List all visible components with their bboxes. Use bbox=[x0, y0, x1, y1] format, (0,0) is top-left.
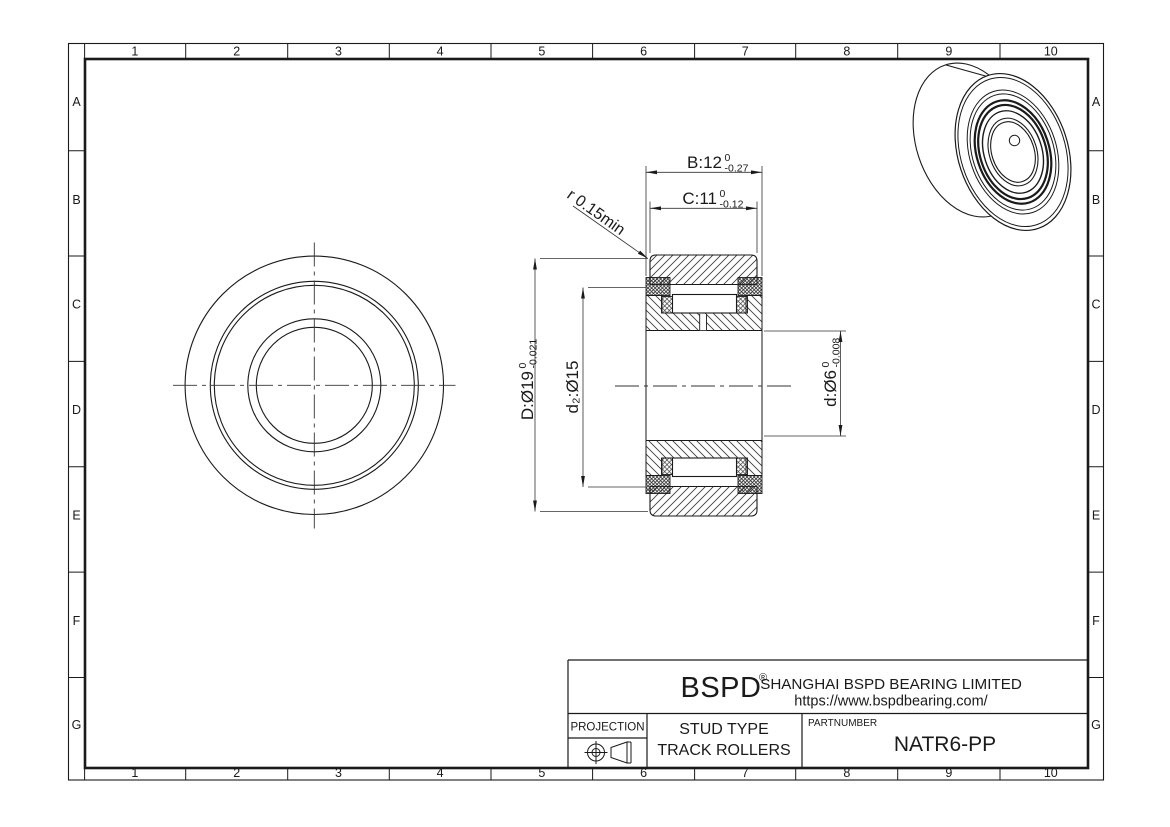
zone-label: A bbox=[72, 95, 81, 109]
dim-c-value: C:11 bbox=[682, 189, 717, 208]
zone-labels-left: A B C D E F G bbox=[72, 95, 82, 732]
isometric-view bbox=[894, 48, 1090, 245]
zone-label: E bbox=[72, 509, 80, 523]
zone-labels-right: A B C D E F G bbox=[1091, 95, 1101, 732]
zone-label: G bbox=[72, 718, 82, 732]
zone-label: 6 bbox=[640, 45, 647, 59]
dim-bore-diameter: d:Ø6 0 -0.008 bbox=[820, 338, 843, 407]
cage-bottom-right bbox=[737, 458, 748, 475]
zone-label: D bbox=[1091, 403, 1100, 417]
zone-label: F bbox=[73, 614, 81, 628]
company-website: https://www.bspdbearing.com/ bbox=[794, 694, 988, 710]
zone-label: 2 bbox=[233, 766, 240, 780]
bore-face-lines bbox=[646, 331, 762, 441]
section-view bbox=[615, 255, 793, 516]
seal-top-left bbox=[646, 278, 670, 296]
zone-label: 3 bbox=[335, 45, 342, 59]
dim-flange-diameter: d₂:Ø15 bbox=[563, 361, 582, 414]
zone-label: B bbox=[72, 193, 80, 207]
zone-label: F bbox=[1092, 614, 1100, 628]
iso-lube-hole bbox=[1009, 135, 1019, 145]
front-view bbox=[173, 243, 456, 529]
projection-label: PROJECTION bbox=[570, 722, 644, 734]
zone-label: 1 bbox=[131, 45, 138, 59]
zone-label: E bbox=[1092, 509, 1100, 523]
dim-outer-diameter: D:Ø19 0 -0.021 bbox=[517, 339, 540, 421]
seal-bottom-right bbox=[738, 476, 762, 494]
zone-label: A bbox=[1092, 95, 1101, 109]
dim-d-value: D:Ø19 bbox=[518, 371, 537, 420]
zone-label: 7 bbox=[742, 45, 749, 59]
company-name: SHANGHAI BSPD BEARING LIMITED bbox=[760, 676, 1022, 693]
title-block: BSPD ® SHANGHAI BSPD BEARING LIMITED htt… bbox=[568, 660, 1088, 768]
dim-bore-tol-lower: -0.008 bbox=[831, 338, 843, 368]
zone-label: 7 bbox=[742, 766, 749, 780]
product-type-line2: TRACK ROLLERS bbox=[657, 742, 790, 759]
zone-label: 5 bbox=[538, 766, 545, 780]
product-type-line1: STUD TYPE bbox=[679, 721, 769, 738]
zone-label: 8 bbox=[843, 45, 850, 59]
dim-width-c: C:11 0 -0.12 bbox=[682, 188, 743, 211]
dim-c-tol-lower: -0.12 bbox=[720, 199, 744, 211]
dim-bore-value: d:Ø6 bbox=[821, 370, 840, 407]
dim-fillet-radius: r 0.15min bbox=[564, 186, 628, 238]
zone-label: 2 bbox=[233, 45, 240, 59]
zone-label: 10 bbox=[1044, 766, 1058, 780]
zone-label: B bbox=[1092, 193, 1100, 207]
zone-label: 4 bbox=[437, 766, 444, 780]
seal-bottom-left bbox=[646, 476, 670, 494]
roller-top bbox=[673, 295, 737, 314]
zone-label: C bbox=[1091, 298, 1100, 312]
cage-top-right bbox=[737, 297, 748, 314]
zone-label: 9 bbox=[945, 45, 952, 59]
zone-label: 3 bbox=[335, 766, 342, 780]
brand-logo: BSPD bbox=[681, 672, 762, 704]
partnumber-value: NATR6-PP bbox=[894, 733, 996, 756]
zone-label: 9 bbox=[945, 766, 952, 780]
oil-hole-slit bbox=[700, 314, 707, 330]
zone-label: 5 bbox=[538, 45, 545, 59]
dim-d2-value: d₂:Ø15 bbox=[563, 361, 582, 414]
seal-top-right bbox=[738, 278, 762, 296]
projection-symbol-icon bbox=[585, 741, 632, 764]
dim-b-tol-lower: -0.27 bbox=[725, 163, 749, 175]
dim-r-value: r 0.15min bbox=[564, 186, 628, 238]
zone-label: 8 bbox=[843, 766, 850, 780]
roller-bottom bbox=[673, 458, 737, 477]
engineering-drawing-sheet: 1 2 3 4 5 6 7 8 9 10 1 2 3 4 5 6 7 8 9 1… bbox=[0, 0, 1170, 827]
zone-label: 1 bbox=[131, 766, 138, 780]
zone-label: 6 bbox=[640, 766, 647, 780]
zone-label: D bbox=[72, 403, 81, 417]
dim-width-b: B:12 0 -0.27 bbox=[687, 152, 749, 175]
zone-label: C bbox=[72, 298, 81, 312]
drawing-svg: 1 2 3 4 5 6 7 8 9 10 1 2 3 4 5 6 7 8 9 1… bbox=[0, 0, 1170, 827]
zone-label: 10 bbox=[1044, 45, 1058, 59]
zone-label: G bbox=[1091, 718, 1101, 732]
dim-d-tol-lower: -0.021 bbox=[528, 339, 540, 369]
partnumber-label: PARTNUMBER bbox=[808, 718, 877, 729]
cage-top-left bbox=[662, 297, 673, 314]
zone-label: 4 bbox=[437, 45, 444, 59]
zone-labels-top: 1 2 3 4 5 6 7 8 9 10 bbox=[131, 45, 1057, 59]
dim-b-value: B:12 bbox=[687, 153, 722, 172]
cage-bottom-left bbox=[662, 458, 673, 475]
